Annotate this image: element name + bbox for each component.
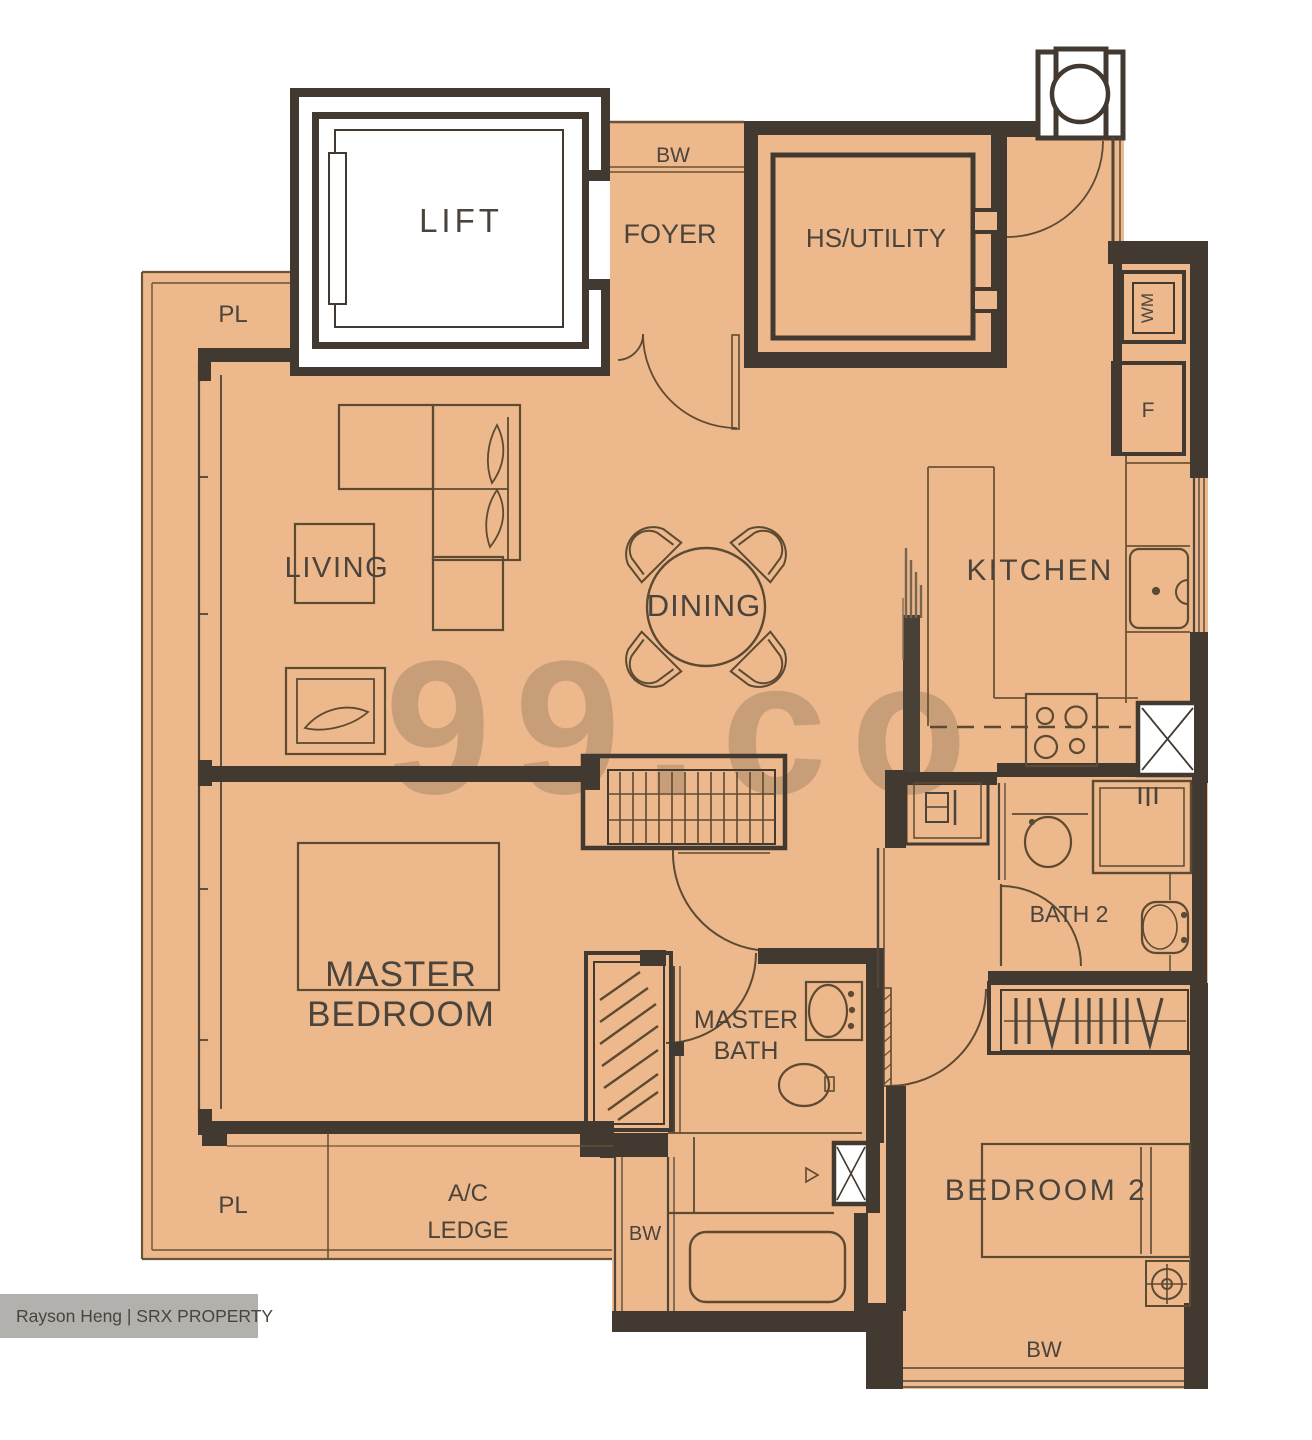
- svg-text:PL: PL: [218, 1192, 247, 1219]
- svg-text:FOYER: FOYER: [623, 219, 716, 249]
- svg-text:BEDROOM 2: BEDROOM 2: [945, 1174, 1148, 1207]
- svg-text:BATH 2: BATH 2: [1030, 901, 1109, 927]
- svg-text:BW: BW: [629, 1223, 661, 1245]
- svg-text:Rayson Heng | SRX PROPERTY: Rayson Heng | SRX PROPERTY: [16, 1306, 273, 1326]
- svg-text:HS/UTILITY: HS/UTILITY: [806, 223, 946, 253]
- svg-text:WM: WM: [1138, 293, 1157, 323]
- svg-text:F: F: [1142, 399, 1155, 422]
- svg-text:BW: BW: [1026, 1337, 1062, 1362]
- svg-text:BEDROOM: BEDROOM: [307, 995, 495, 1034]
- svg-text:PL: PL: [218, 301, 247, 328]
- svg-text:LIFT: LIFT: [419, 202, 503, 239]
- svg-text:BW: BW: [656, 144, 690, 167]
- svg-text:BATH: BATH: [714, 1037, 779, 1065]
- svg-text:MASTER: MASTER: [325, 955, 477, 994]
- svg-text:DINING: DINING: [647, 588, 762, 623]
- svg-text:LEDGE: LEDGE: [427, 1217, 508, 1244]
- svg-text:LIVING: LIVING: [285, 552, 390, 584]
- svg-text:A/C: A/C: [448, 1180, 488, 1207]
- svg-text:MASTER: MASTER: [694, 1006, 798, 1034]
- svg-text:KITCHEN: KITCHEN: [966, 554, 1113, 587]
